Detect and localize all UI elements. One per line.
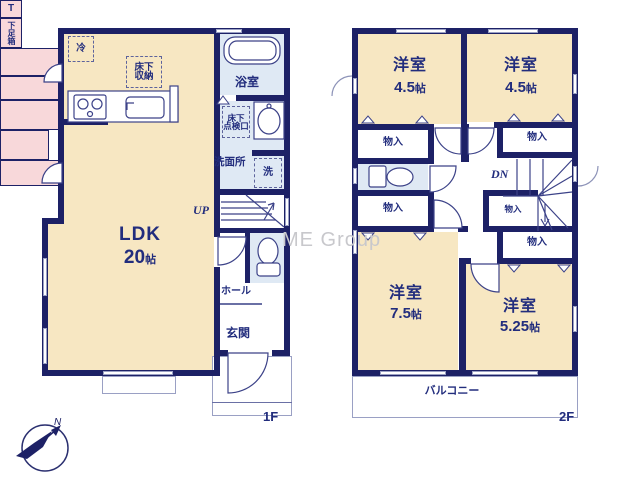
wall [252,150,290,156]
wall [483,226,578,232]
room-ne-size: 4.5帖 [505,80,537,95]
window [216,29,242,33]
stairs-up-label: UP [193,204,209,216]
entrance-porch [212,356,292,416]
wall [466,258,471,264]
wall [58,28,290,34]
balcony-label: バルコニー [425,386,480,397]
ldk-size-num: 20 [124,247,145,268]
room-se [466,264,572,370]
window [488,29,538,33]
wall [214,267,220,376]
wall [461,124,469,162]
hall-label: ホール [221,287,251,297]
wall [214,189,290,195]
room-nw-size: 4.5帖 [394,80,426,95]
wall [428,130,434,164]
shoe-cabinet-t: T [0,0,22,18]
room-se-size: 5.25帖 [500,319,540,334]
wall [272,350,290,356]
washer-label: 洗 [263,168,273,178]
room-nw-name: 洋室 [393,58,427,74]
porch-step-line [212,402,292,403]
floorplan-canvas: 冷 床下 収納 床下 点検口 洗 T 下足箱 [0,0,640,480]
room-nw-size-unit: 帖 [415,83,426,95]
wall [459,258,466,370]
window [380,371,446,375]
wall [497,258,578,264]
room-sw-name: 洋室 [389,286,423,302]
wall [214,350,228,356]
room-ne [467,34,572,122]
room-ne-name: 洋室 [504,58,538,74]
wall [483,190,538,196]
window [353,78,357,94]
fridge-label: 冷 [76,44,86,54]
room-sw-size: 7.5帖 [390,306,422,321]
window [573,166,577,182]
wall [352,124,434,130]
wall [497,122,503,158]
shoe-cabinet-label: 下足箱 [7,21,15,45]
ldk-size-unit: 帖 [145,254,156,266]
wall [236,95,290,101]
underfloor-hatch-line2: 点検口 [223,122,249,131]
wall [428,196,434,232]
wall [458,226,468,232]
room-se-size-num: 5.25 [500,318,529,335]
floor1-label: 1F [263,410,278,423]
window [573,306,577,332]
underfloor-storage: 床下 収納 [126,56,162,88]
wall [497,232,503,258]
window [353,168,357,184]
ldk-size: 20帖 [124,248,156,267]
room-toilet-2f [358,164,428,190]
closet-label: 物入 [504,205,521,214]
washer-space: 洗 [254,158,282,188]
genkan-step-line [220,303,262,305]
washroom-label: 洗面所 [214,157,246,168]
closet-label: 物入 [383,138,403,148]
shoe-cabinet-t-label: T [8,4,14,14]
room-se-name: 洋室 [503,299,537,315]
window [396,29,446,33]
closet-label: 物入 [383,204,403,214]
window [573,74,577,94]
watermark: ME Group [282,229,381,252]
window [43,328,47,364]
wall [58,28,64,224]
window [472,371,538,375]
fridge-space: 冷 [68,36,94,62]
entrance-label: 玄関 [226,327,250,339]
closet-center [0,130,49,160]
compass-north-label: N [54,417,62,428]
room-sw-size-unit: 帖 [411,309,422,321]
stairs-down-label: DN [491,168,508,180]
room-ne-size-unit: 帖 [526,83,537,95]
wall [483,196,489,226]
window [103,371,173,375]
closet-label: 物入 [527,133,547,143]
wall [494,122,578,128]
room-toilet-1f [250,233,284,283]
underfloor-storage-line2: 収納 [134,72,153,82]
ldk-name: LDK [119,225,161,244]
wall [214,34,220,237]
wall [497,152,578,158]
underfloor-hatch: 床下 点検口 [222,106,250,138]
room-ne-size-num: 4.5 [505,79,526,96]
wall [461,28,467,130]
wall [245,233,250,283]
compass-icon: N [16,417,68,471]
room-sw-size-num: 7.5 [390,305,411,322]
window [285,198,289,226]
kitchen-half-wall [64,119,108,125]
terrace-step [102,376,176,394]
room-ldk-lower [48,224,214,370]
stairs-1f [221,195,284,227]
room-nw-size-num: 4.5 [394,79,415,96]
shoe-cabinet: 下足箱 [0,18,22,48]
wall [352,190,434,196]
balcony [352,376,578,418]
room-se-size-unit: 帖 [529,322,540,334]
bathroom-label: 浴室 [235,76,259,88]
closet-label: 物入 [527,238,547,248]
wall [352,158,434,164]
window [43,258,47,296]
floor2-label: 2F [559,410,574,423]
